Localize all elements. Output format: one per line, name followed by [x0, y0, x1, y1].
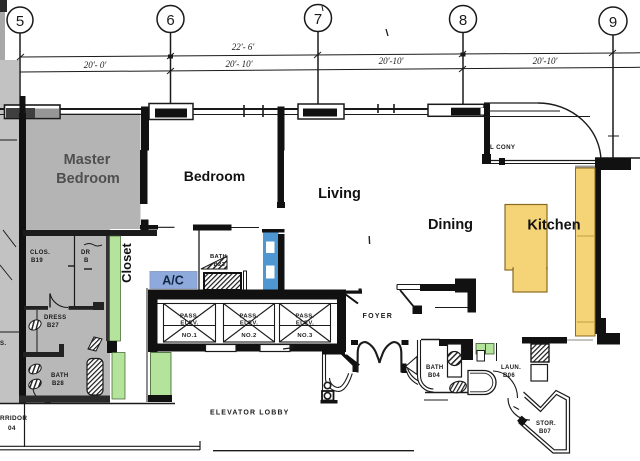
- svg-text:20'- 0': 20'- 0': [84, 60, 108, 70]
- svg-text:BATH: BATH: [210, 254, 227, 260]
- svg-text:NO.1: NO.1: [182, 333, 198, 339]
- svg-text:20'-10': 20'-10': [379, 56, 405, 66]
- svg-text:22'- 6': 22'- 6': [232, 42, 256, 52]
- svg-text:Bedroom: Bedroom: [56, 171, 120, 187]
- svg-text:PASS.: PASS.: [240, 314, 259, 320]
- svg-text:DRESS: DRESS: [44, 315, 66, 321]
- svg-text:A/C: A/C: [162, 274, 184, 288]
- svg-text:STOR.: STOR.: [536, 421, 556, 427]
- svg-text:L CONY: L CONY: [490, 144, 516, 151]
- svg-text:20'-10': 20'-10': [533, 56, 559, 66]
- svg-text:04: 04: [8, 425, 16, 432]
- svg-text:ELEV.: ELEV.: [296, 321, 314, 327]
- svg-text:B23: B23: [214, 262, 226, 268]
- svg-text:NO.2: NO.2: [241, 333, 257, 339]
- svg-text:Kitchen: Kitchen: [527, 218, 580, 234]
- svg-text:B19: B19: [31, 258, 43, 264]
- svg-text:ELEV.: ELEV.: [240, 321, 258, 327]
- svg-text:NO.3: NO.3: [297, 333, 313, 339]
- svg-text:LAUN.: LAUN.: [501, 365, 521, 371]
- svg-text:BATH: BATH: [51, 373, 69, 379]
- svg-text:7: 7: [314, 11, 322, 28]
- svg-text:CLOS.: CLOS.: [30, 250, 50, 256]
- svg-text:5: 5: [16, 13, 24, 30]
- svg-text:B: B: [84, 258, 89, 264]
- svg-text:ELEV.: ELEV.: [180, 321, 198, 327]
- svg-text:RRIDOR: RRIDOR: [0, 415, 27, 422]
- svg-text:Master: Master: [64, 152, 111, 168]
- svg-text:B27: B27: [47, 323, 59, 329]
- svg-text:ELEVATOR LOBBY: ELEVATOR LOBBY: [210, 410, 290, 417]
- svg-text:9: 9: [609, 14, 617, 31]
- svg-text:BATH: BATH: [426, 365, 444, 371]
- svg-text:20'- 10': 20'- 10': [225, 59, 253, 69]
- svg-text:Closet: Closet: [119, 242, 134, 282]
- svg-text:Bedroom: Bedroom: [184, 168, 245, 184]
- svg-text:Living: Living: [318, 186, 361, 202]
- svg-text:S.: S.: [0, 341, 6, 347]
- svg-text:PASS.: PASS.: [180, 314, 199, 320]
- svg-text:PASS.: PASS.: [296, 314, 315, 320]
- svg-text:8: 8: [459, 12, 467, 29]
- svg-text:B07: B07: [539, 429, 551, 435]
- svg-text:B28: B28: [52, 381, 64, 387]
- svg-text:B04: B04: [428, 373, 440, 379]
- svg-text:FOYER: FOYER: [363, 313, 394, 320]
- svg-text:DR: DR: [81, 250, 91, 256]
- svg-text:6: 6: [166, 12, 174, 29]
- svg-text:Dining: Dining: [428, 217, 473, 233]
